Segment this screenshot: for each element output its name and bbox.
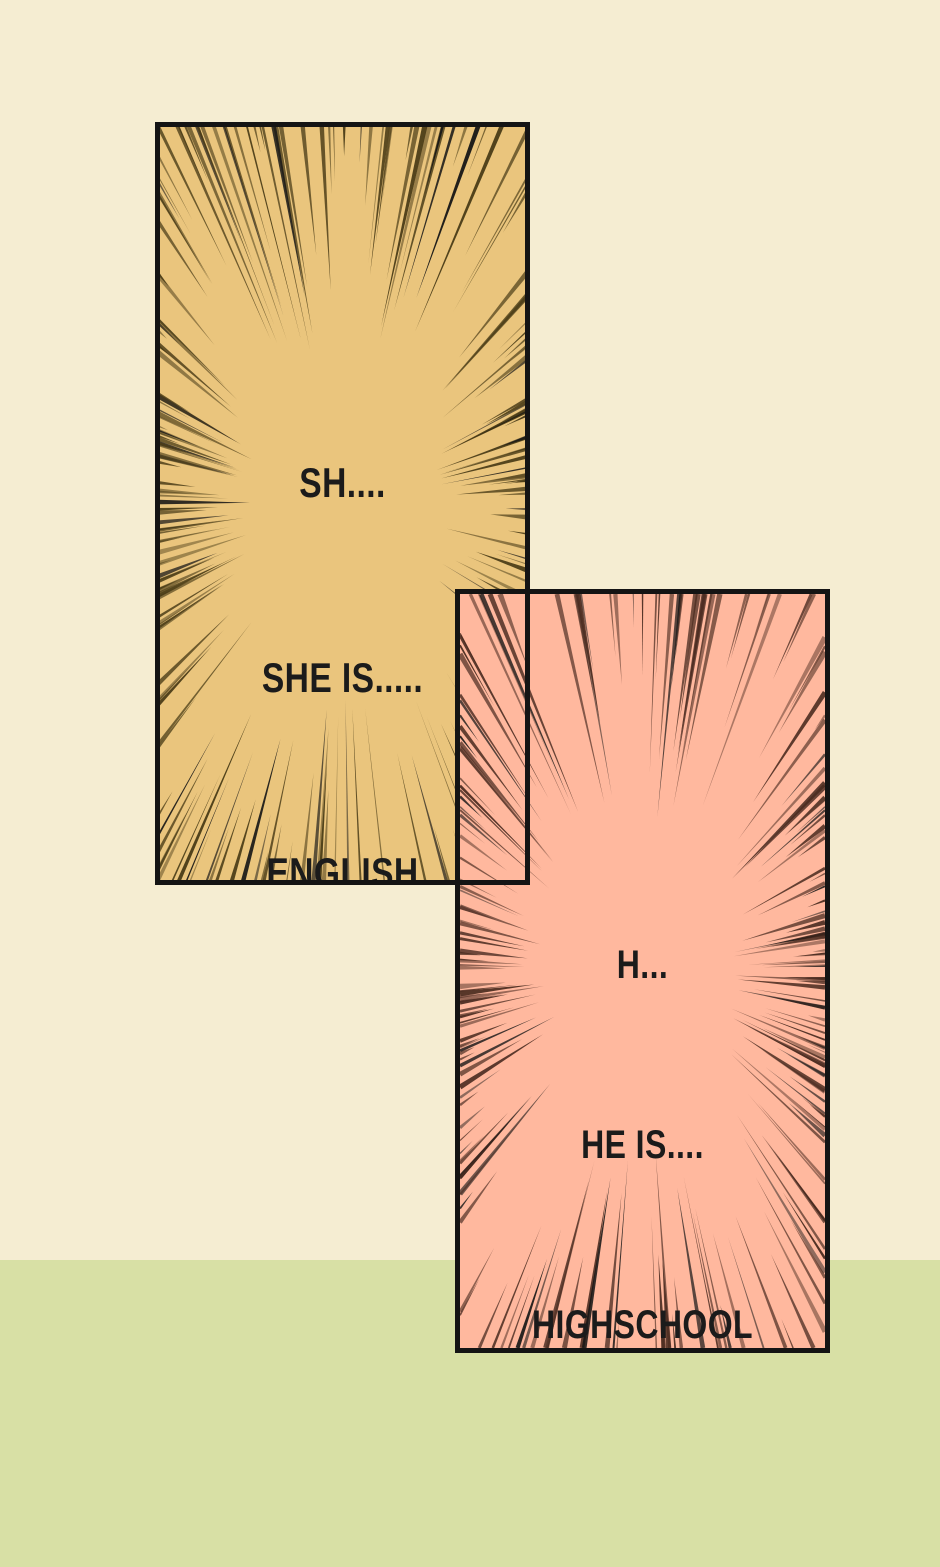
dialogue-line: H... — [497, 935, 789, 995]
dialogue-line: SHE IS..... — [193, 645, 493, 710]
comic-page: SH.... SHE IS..... ENGLISH TEACHER ??? H… — [0, 0, 940, 1567]
panel-student-shock: H... HE IS.... HIGHSCHOOL STUDENT ??? — [455, 589, 830, 1353]
dialogue-line: HIGHSCHOOL — [497, 1295, 789, 1353]
dialogue-line: SH.... — [193, 450, 493, 515]
dialogue-line: ENGLISH — [193, 840, 493, 885]
dialogue-student: H... HE IS.... HIGHSCHOOL STUDENT ??? — [497, 815, 789, 1353]
dialogue-line: HE IS.... — [497, 1115, 789, 1175]
dialogue-teacher: SH.... SHE IS..... ENGLISH TEACHER ??? — [193, 320, 493, 885]
